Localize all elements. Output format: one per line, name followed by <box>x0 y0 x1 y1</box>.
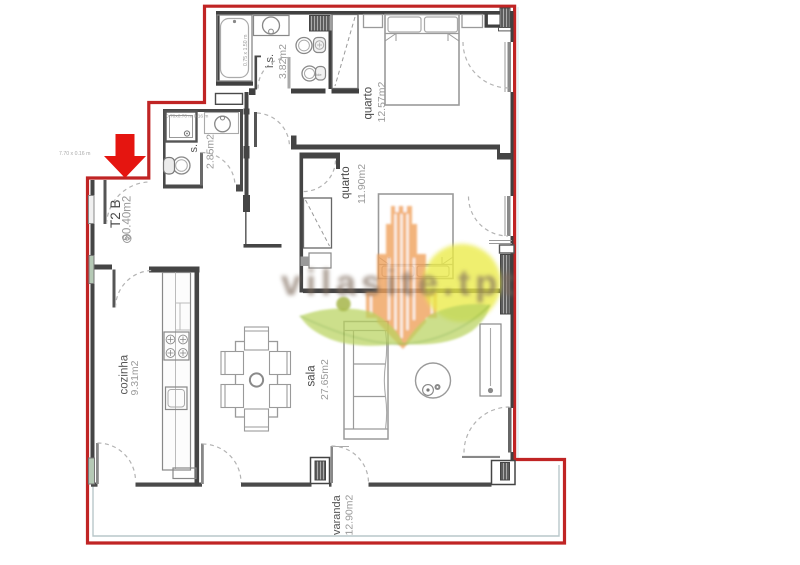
svg-text:2.85m2: 2.85m2 <box>205 134 217 169</box>
svg-text:varanda: varanda <box>331 494 343 535</box>
svg-text:bide: bide <box>314 72 322 77</box>
svg-text:3.82m2: 3.82m2 <box>277 44 289 79</box>
svg-text:0.70x0.70 m 0.16 m: 0.70x0.70 m 0.16 m <box>166 114 208 120</box>
svg-text:sala: sala <box>306 365 318 387</box>
svg-text:quarto: quarto <box>363 87 375 120</box>
svg-text:12.57m2: 12.57m2 <box>376 81 388 122</box>
svg-text:i.s.: i.s. <box>264 54 276 68</box>
svg-text:12.90m2: 12.90m2 <box>344 494 356 535</box>
svg-text:quarto: quarto <box>340 166 352 199</box>
svg-text:27.65m2: 27.65m2 <box>319 359 331 400</box>
svg-text:7.70 x 0.16 m: 7.70 x 0.16 m <box>59 151 90 157</box>
svg-text:90.40m2: 90.40m2 <box>122 196 134 241</box>
svg-text:0.75 x 1.50 m: 0.75 x 1.50 m <box>243 35 249 66</box>
svg-text:11.90m2: 11.90m2 <box>356 164 368 204</box>
svg-text:9.31m2: 9.31m2 <box>129 360 141 395</box>
svg-text:vilasite.tpt: vilasite.tpt <box>281 262 519 303</box>
svg-text:s.: s. <box>188 144 200 153</box>
